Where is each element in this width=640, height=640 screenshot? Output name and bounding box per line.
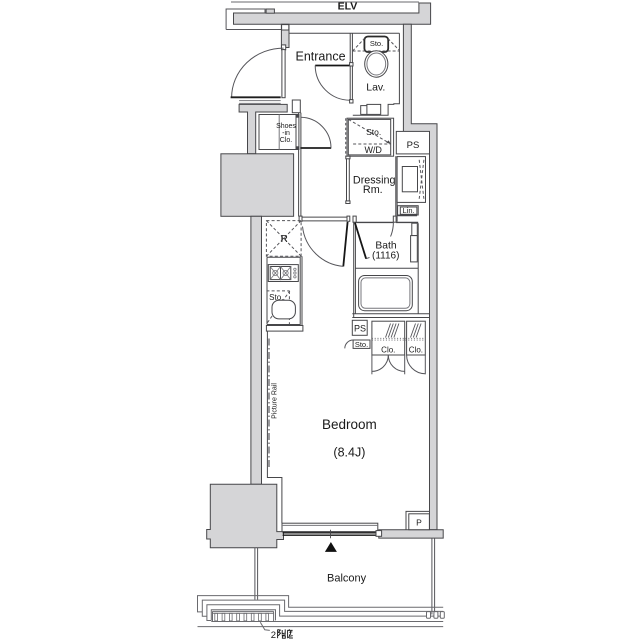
svg-text:W/D: W/D (364, 145, 382, 155)
svg-text:Sto.: Sto. (269, 293, 283, 302)
svg-text:PS: PS (407, 140, 420, 151)
svg-text:PS: PS (354, 324, 366, 334)
svg-text:P: P (416, 518, 422, 528)
svg-text:Lin.: Lin. (403, 206, 415, 215)
svg-text:Sto.: Sto. (355, 340, 368, 349)
svg-text:Lav.: Lav. (366, 82, 385, 94)
svg-text:Shoes: Shoes (276, 123, 296, 130)
svg-text:(1116): (1116) (372, 251, 399, 262)
svg-text:Clo.: Clo. (409, 346, 423, 355)
svg-text:(8.4J): (8.4J) (333, 446, 365, 460)
svg-text:R: R (281, 234, 288, 245)
svg-text:-in: -in (282, 130, 290, 137)
svg-text:Picture Rail: Picture Rail (272, 383, 279, 419)
svg-text:Sto.: Sto. (370, 39, 383, 48)
svg-text:Clo.: Clo. (280, 137, 293, 144)
svg-text:Entrance: Entrance (295, 50, 345, 64)
svg-text:Bedroom: Bedroom (322, 417, 377, 432)
svg-text:2: 2 (271, 630, 276, 640)
svg-text:Rm.: Rm. (363, 184, 383, 196)
svg-text:Sto.: Sto. (366, 127, 381, 137)
svg-text:ELV: ELV (338, 1, 358, 13)
svg-text:Clo.: Clo. (381, 346, 395, 355)
svg-text:Balcony: Balcony (327, 573, 367, 585)
